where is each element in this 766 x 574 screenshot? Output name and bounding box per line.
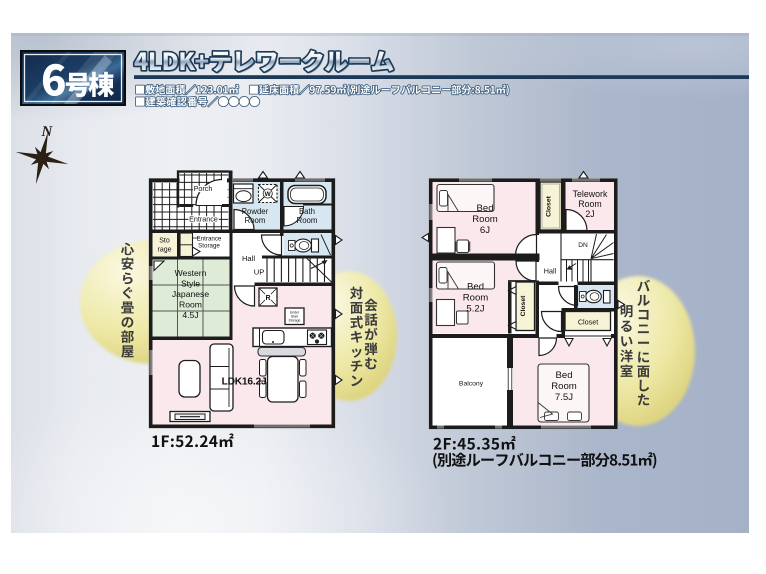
svg-text:Room: Room	[551, 381, 577, 392]
svg-text:UP: UP	[254, 268, 265, 277]
svg-text:Bed: Bed	[467, 282, 484, 293]
svg-text:Room: Room	[578, 199, 601, 209]
svg-text:Entrance: Entrance	[197, 236, 222, 243]
svg-text:Room: Room	[472, 214, 498, 225]
svg-text:Room: Room	[245, 216, 266, 225]
svg-text:Balcony: Balcony	[459, 381, 484, 388]
svg-text:Powder: Powder	[242, 207, 269, 216]
svg-text:6J: 6J	[480, 225, 490, 236]
svg-text:R: R	[265, 295, 270, 302]
svg-text:rage: rage	[157, 247, 171, 254]
svg-text:Bed: Bed	[476, 203, 493, 214]
svg-text:Porch: Porch	[194, 184, 213, 193]
svg-text:Bed: Bed	[555, 370, 572, 381]
svg-text:Sto: Sto	[159, 238, 170, 245]
svg-text:Hall: Hall	[544, 267, 557, 276]
svg-text:Closet: Closet	[578, 318, 598, 327]
svg-text:Room: Room	[179, 300, 202, 310]
svg-text:Entrance: Entrance	[189, 215, 218, 224]
svg-text:Western: Western	[175, 268, 207, 278]
svg-text:Bath: Bath	[299, 207, 315, 216]
svg-text:4.5J: 4.5J	[182, 310, 198, 320]
svg-text:Hall: Hall	[242, 254, 255, 263]
svg-text:5.2J: 5.2J	[466, 304, 484, 315]
svg-text:Storage: Storage	[289, 319, 301, 323]
svg-text:Closet: Closet	[546, 195, 553, 217]
svg-text:Room: Room	[297, 216, 318, 225]
svg-text:Style: Style	[181, 279, 200, 289]
svg-text:Closet: Closet	[520, 295, 527, 317]
svg-text:Japanese: Japanese	[172, 289, 209, 299]
svg-text:Room: Room	[463, 293, 489, 304]
svg-text:DN: DN	[578, 242, 588, 249]
svg-text:Telework: Telework	[573, 189, 608, 199]
svg-text:Storage: Storage	[198, 243, 220, 250]
svg-text:2J: 2J	[585, 209, 594, 219]
svg-text:W: W	[265, 191, 272, 198]
svg-text:LDK16.2J: LDK16.2J	[222, 377, 267, 388]
svg-text:7.5J: 7.5J	[555, 392, 573, 403]
